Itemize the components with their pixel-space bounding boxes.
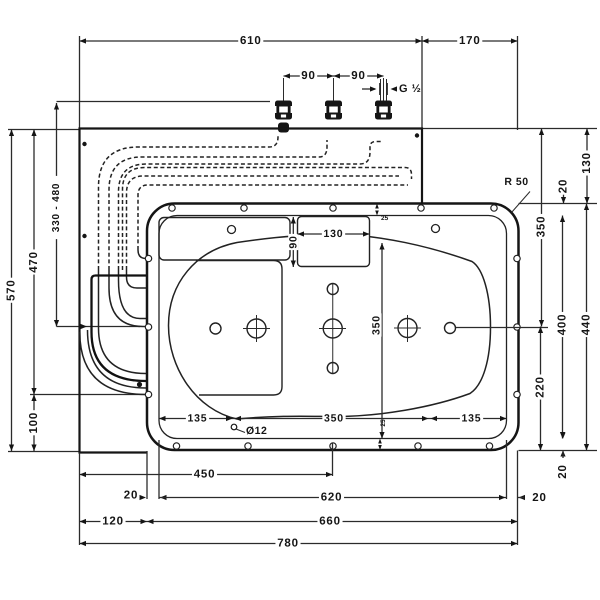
svg-text:400: 400: [557, 314, 569, 336]
svg-text:90: 90: [301, 70, 315, 82]
svg-text:100: 100: [28, 412, 40, 434]
svg-text:Ø12: Ø12: [246, 425, 267, 437]
svg-text:170: 170: [459, 35, 481, 47]
svg-text:350: 350: [371, 315, 383, 335]
svg-text:120: 120: [102, 516, 124, 528]
svg-text:350: 350: [324, 413, 344, 425]
svg-text:20: 20: [124, 490, 138, 502]
svg-text:620: 620: [321, 492, 343, 504]
svg-text:20: 20: [558, 179, 570, 193]
svg-text:25: 25: [380, 419, 387, 427]
svg-text:780: 780: [277, 538, 299, 550]
svg-text:330 - 480: 330 - 480: [51, 183, 62, 232]
svg-text:610: 610: [240, 35, 262, 47]
svg-text:660: 660: [319, 516, 341, 528]
svg-text:20: 20: [532, 492, 546, 504]
svg-text:20: 20: [557, 464, 569, 478]
svg-text:130: 130: [581, 152, 593, 174]
svg-text:220: 220: [535, 376, 547, 398]
svg-text:130: 130: [324, 228, 344, 240]
svg-text:90: 90: [351, 70, 365, 82]
svg-text:570: 570: [6, 279, 18, 301]
svg-text:25: 25: [381, 215, 389, 222]
svg-text:R 50: R 50: [504, 176, 528, 188]
svg-text:G ½: G ½: [399, 83, 421, 95]
svg-text:450: 450: [194, 469, 216, 481]
svg-text:350: 350: [536, 216, 548, 238]
svg-text:440: 440: [581, 314, 593, 336]
svg-text:90: 90: [287, 235, 299, 248]
svg-text:470: 470: [28, 251, 40, 273]
svg-text:135: 135: [462, 413, 482, 425]
svg-text:135: 135: [188, 413, 208, 425]
